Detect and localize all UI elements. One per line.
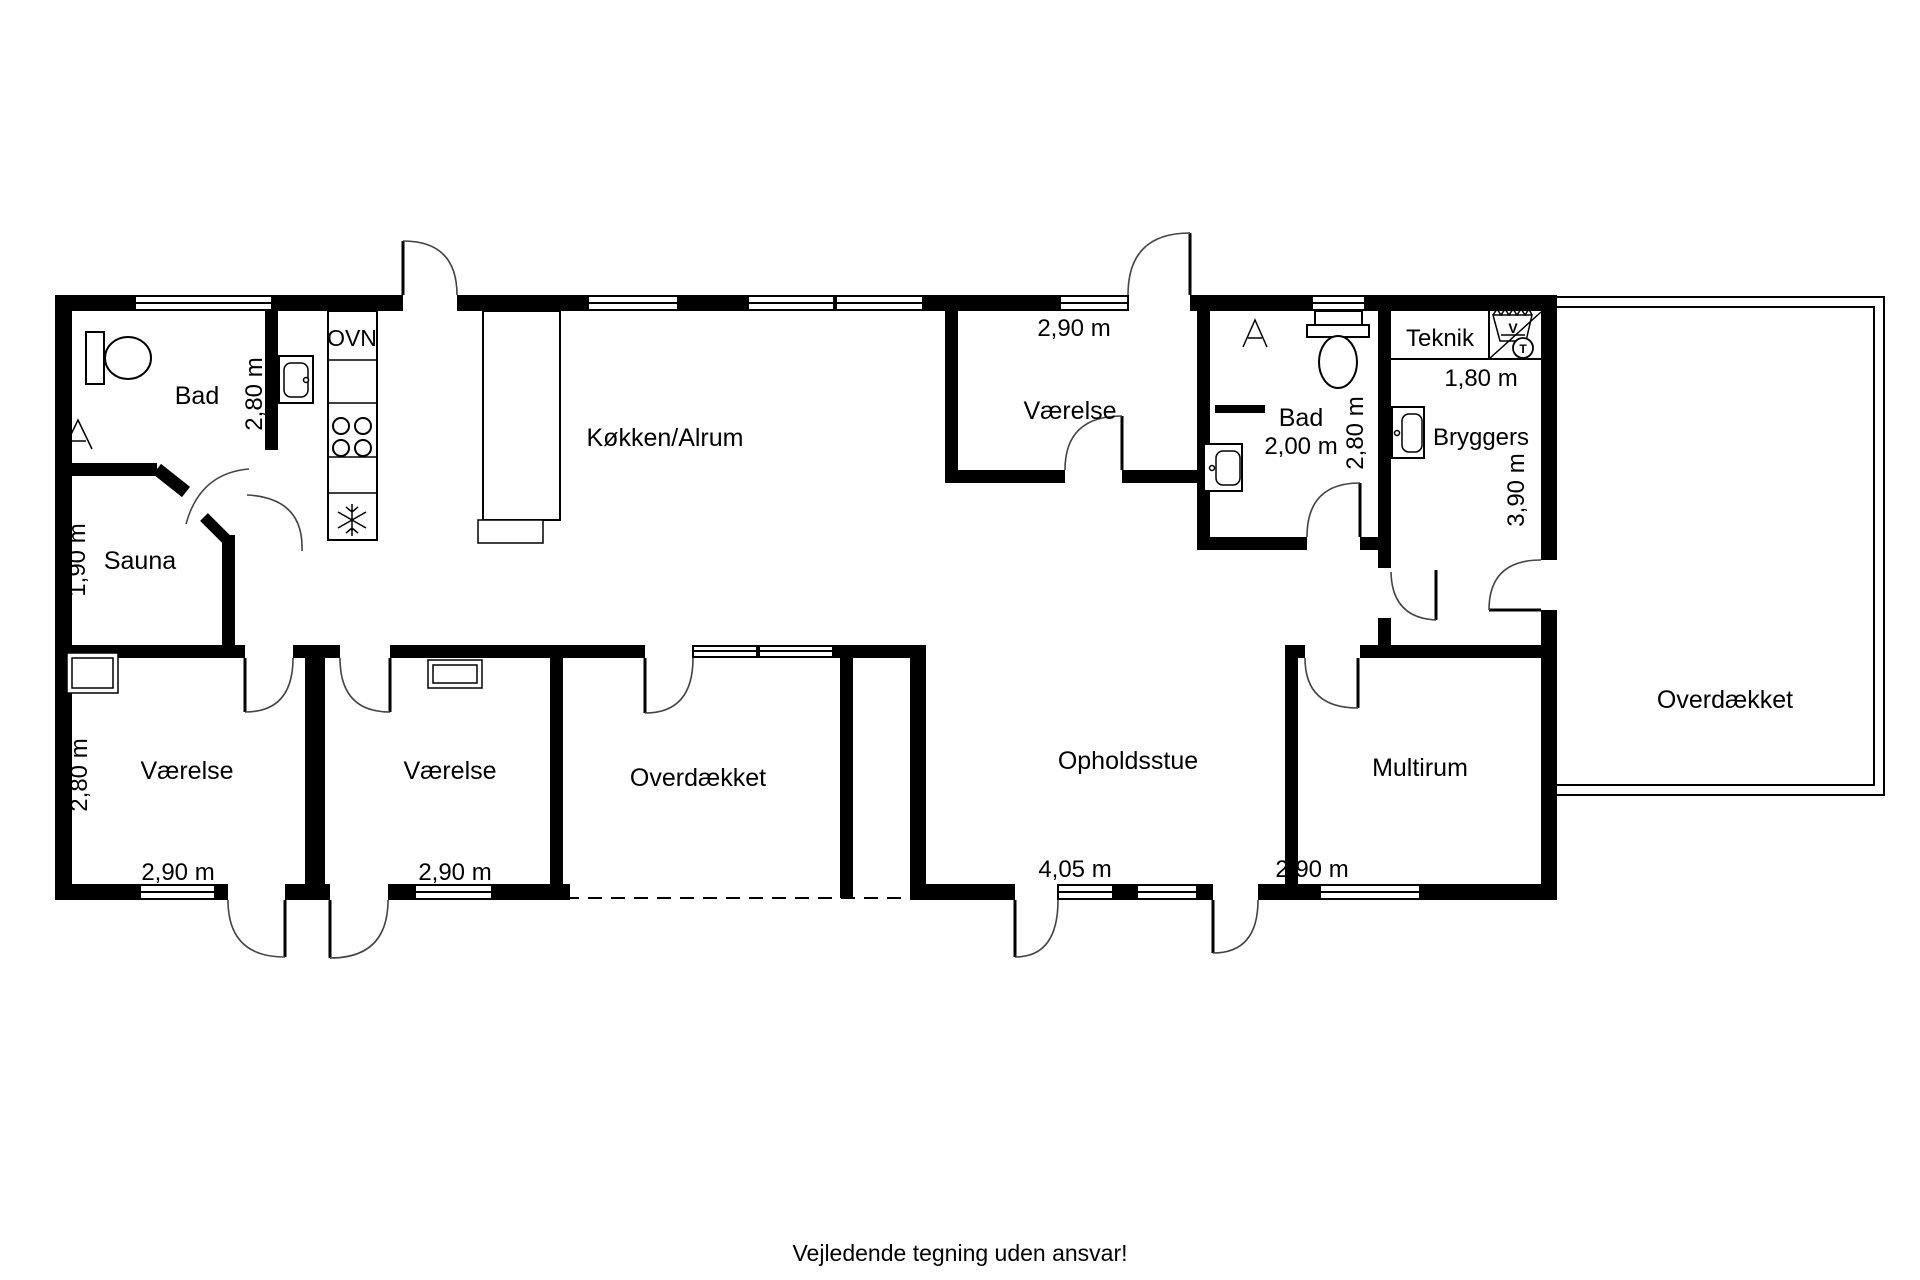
room-label-terrace-right: Overdækket [1657, 686, 1793, 714]
window [135, 296, 272, 310]
wardrobe-icon-bedroom-mid [428, 660, 482, 688]
room-label-living: Opholdsstue [1058, 747, 1198, 775]
window [415, 885, 492, 899]
window [693, 646, 833, 657]
room-label-teknik: Teknik [1406, 325, 1475, 352]
sink-icon-bryggers [1392, 407, 1424, 458]
label-dryer: T [1519, 342, 1527, 356]
dim-label-bryggers-width: 1,80 m [1444, 365, 1517, 392]
room-label-sauna: Sauna [104, 547, 176, 575]
floor-plan-drawing: Bad 2,80 m Sauna 1,90 m OVN Køkken/Alrum… [0, 0, 1920, 1280]
window [140, 885, 215, 899]
window [748, 296, 923, 310]
terrace-right-outline [1557, 297, 1884, 795]
room-label-bryggers: Bryggers [1433, 424, 1529, 451]
floor-plan-page: Bad 2,80 m Sauna 1,90 m OVN Køkken/Alrum… [0, 0, 1920, 1280]
disclaimer-text: Vejledende tegning uden ansvar! [0, 1240, 1920, 1267]
room-label-kitchen: Køkken/Alrum [587, 424, 744, 452]
window [1312, 296, 1365, 310]
room-label-bad-right: Bad [1279, 404, 1323, 432]
sink-icon-kitchen-wall [279, 356, 313, 403]
dim-label-bedroom-top-width: 2,90 m [1037, 315, 1110, 342]
room-label-bedroom-left: Værelse [140, 757, 233, 785]
window [1058, 885, 1113, 899]
room-label-bedroom-top: Værelse [1023, 397, 1116, 425]
room-label-bad-left: Bad [175, 382, 219, 410]
shower-icon-bath-right [1243, 320, 1267, 347]
toilet-icon-right [1307, 311, 1369, 388]
dim-label-bad-right-width: 2,00 m [1264, 433, 1337, 460]
window [1320, 885, 1420, 899]
dim-label-sauna-depth: 1,90 m [64, 523, 91, 596]
toilet-icon-left [86, 332, 151, 384]
window [588, 296, 678, 310]
dim-label-living-width: 4,05 m [1038, 856, 1111, 883]
room-label-bedroom-mid: Værelse [403, 757, 496, 785]
wardrobe-icon-bedroom-left [67, 653, 118, 693]
dim-label-bad-right-depth: 2,80 m [1342, 396, 1369, 469]
label-oven: OVN [327, 325, 377, 351]
window [1060, 296, 1128, 310]
dim-label-bedroom-left-depth: 2,80 m [66, 738, 93, 811]
dim-label-bad-left-depth: 2,80 m [241, 357, 268, 430]
dim-label-bedroom-mid-width: 2,90 m [418, 859, 491, 886]
sink-icon-bath-right [1204, 444, 1242, 491]
dim-label-bryggers-depth: 3,90 m [1503, 453, 1530, 526]
kitchen-island [478, 311, 560, 543]
room-label-terrace-center: Overdækket [630, 764, 766, 792]
dim-label-multiroom-width: 2,90 m [1275, 856, 1348, 883]
window [1137, 885, 1197, 899]
dim-label-bedroom-left-width: 2,90 m [141, 859, 214, 886]
room-label-multiroom: Multirum [1372, 754, 1468, 782]
label-washer: V [1508, 320, 1518, 336]
